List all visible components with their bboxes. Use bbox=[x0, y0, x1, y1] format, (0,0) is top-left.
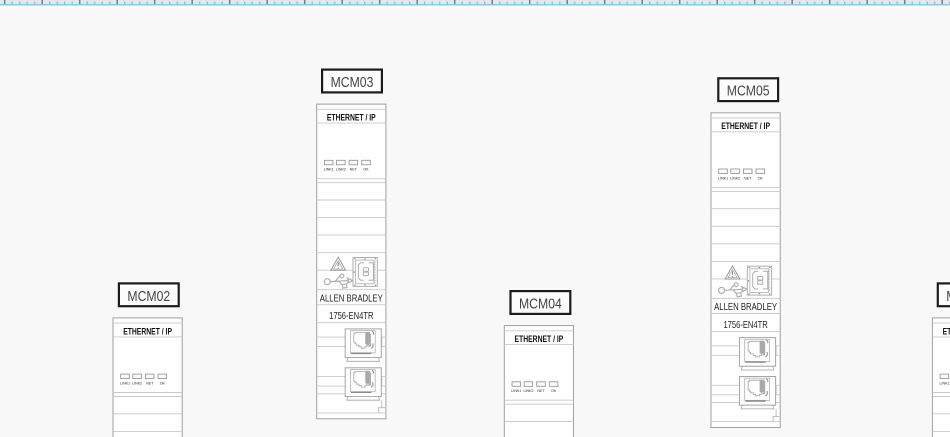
svg-text:ALLEN BRADLEY: ALLEN BRADLEY bbox=[714, 302, 777, 313]
svg-text:ETHERNET / IP: ETHERNET / IP bbox=[123, 326, 172, 337]
svg-text:ETHERNET / IP: ETHERNET / IP bbox=[943, 326, 950, 337]
svg-text:MCM04: MCM04 bbox=[519, 297, 562, 313]
svg-text:MCM05: MCM05 bbox=[727, 84, 770, 100]
svg-text:ETHERNET / IP: ETHERNET / IP bbox=[515, 334, 564, 345]
svg-text:ALLEN BRADLEY: ALLEN BRADLEY bbox=[320, 293, 383, 304]
svg-text:MCM06: MCM06 bbox=[946, 289, 950, 305]
svg-text:MCM02: MCM02 bbox=[127, 289, 170, 305]
svg-text:ETHERNET / IP: ETHERNET / IP bbox=[327, 113, 376, 124]
svg-text:MCM03: MCM03 bbox=[331, 75, 374, 91]
svg-text:1756-EN4TR: 1756-EN4TR bbox=[329, 311, 373, 322]
svg-text:ETHERNET / IP: ETHERNET / IP bbox=[721, 121, 770, 132]
svg-text:1756-EN4TR: 1756-EN4TR bbox=[723, 320, 767, 331]
svg-text:LINK1LINK2NETOK: LINK1LINK2NETOK bbox=[940, 382, 950, 386]
